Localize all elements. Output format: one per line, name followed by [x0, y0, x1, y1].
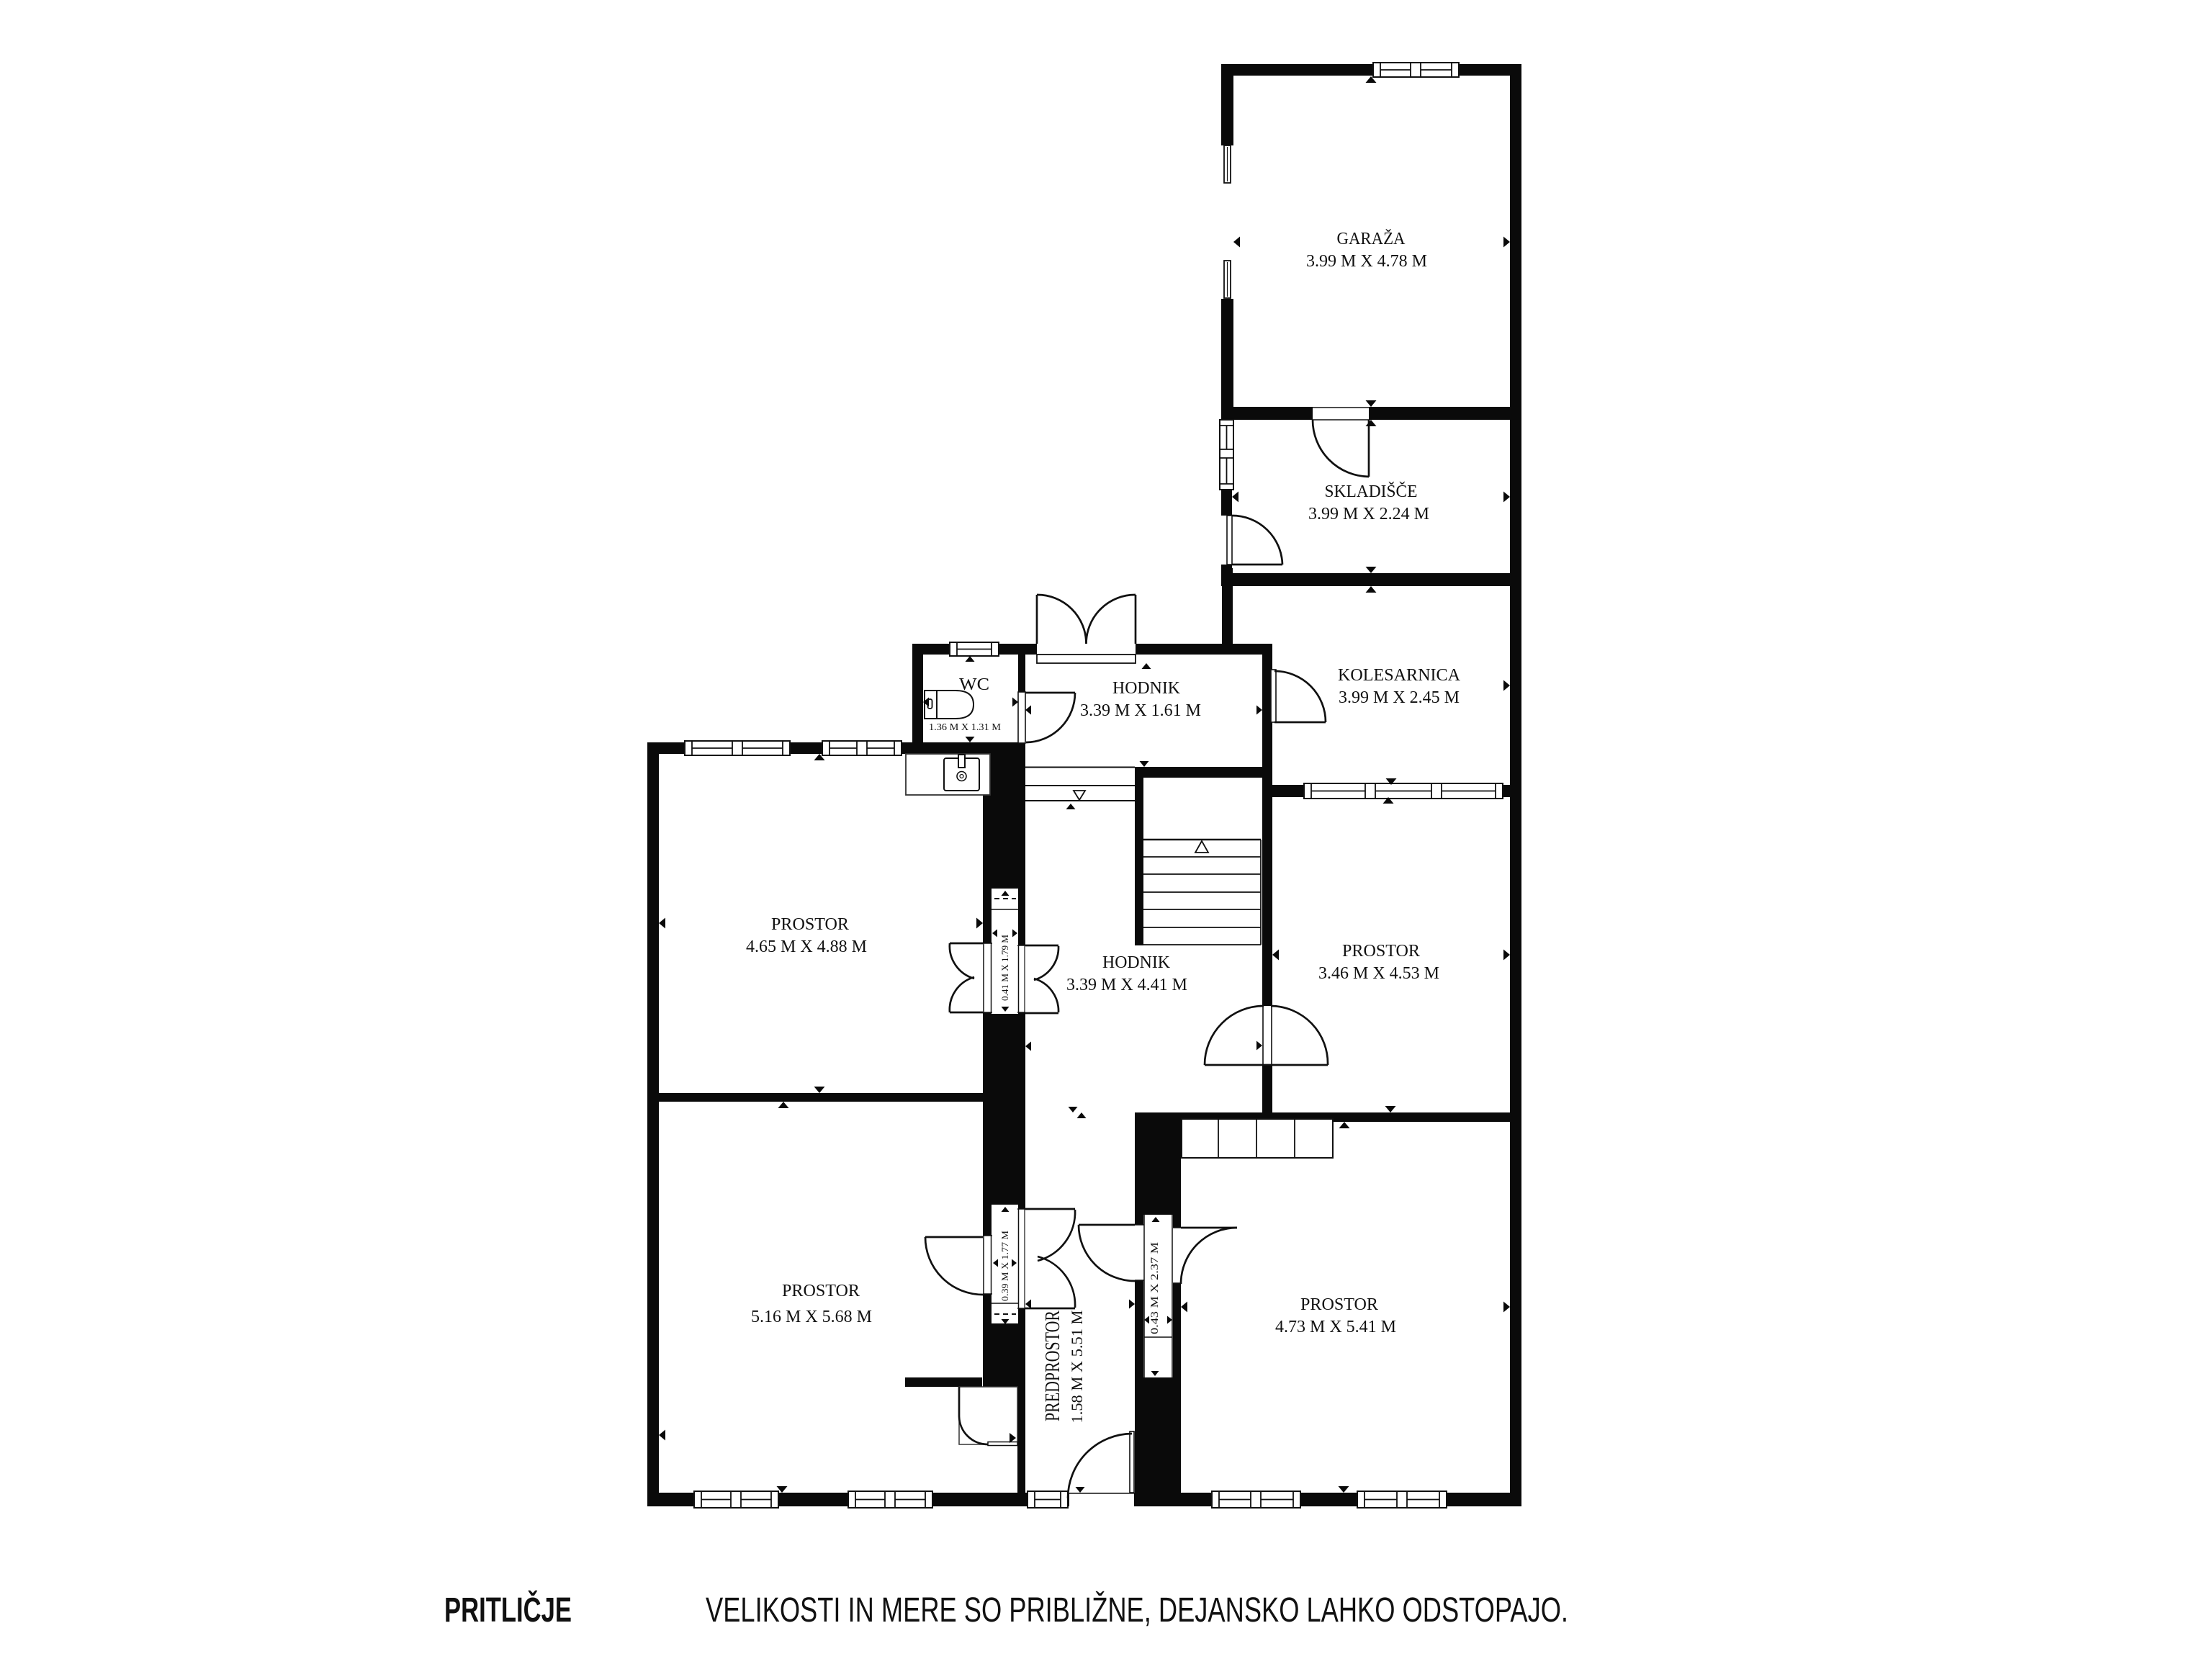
svg-text:0.41 M X 1.79 M: 0.41 M X 1.79 M	[999, 935, 1010, 1001]
svg-text:HODNIK: HODNIK	[1112, 679, 1181, 698]
svg-text:PROSTOR: PROSTOR	[1300, 1295, 1378, 1314]
svg-text:HODNIK: HODNIK	[1102, 953, 1171, 972]
svg-text:0.39 M X 1.77 M: 0.39 M X 1.77 M	[999, 1231, 1010, 1301]
svg-text:PRITLIČJE: PRITLIČJE	[444, 1590, 572, 1629]
svg-text:3.39 M X 4.41 M: 3.39 M X 4.41 M	[1066, 976, 1187, 994]
svg-text:3.99 M X 2.24 M: 3.99 M X 2.24 M	[1308, 505, 1429, 523]
svg-text:3.46 M X 4.53 M: 3.46 M X 4.53 M	[1318, 964, 1439, 983]
svg-text:3.39 M X 1.61 M: 3.39 M X 1.61 M	[1080, 701, 1201, 720]
svg-text:KOLESARNICA: KOLESARNICA	[1338, 666, 1461, 685]
svg-text:PREDPROSTOR: PREDPROSTOR	[1042, 1310, 1064, 1421]
svg-text:VELIKOSTI IN MERE SO PRIBLIŽNE: VELIKOSTI IN MERE SO PRIBLIŽNE, DEJANSKO…	[706, 1591, 1568, 1629]
svg-text:1.36 M X 1.31 M: 1.36 M X 1.31 M	[929, 722, 1002, 733]
svg-text:4.73 M X 5.41 M: 4.73 M X 5.41 M	[1275, 1318, 1396, 1336]
svg-text:3.99 M X 2.45 M: 3.99 M X 2.45 M	[1339, 688, 1460, 707]
svg-text:GARAŽA: GARAŽA	[1337, 230, 1406, 248]
svg-text:5.16 M X 5.68 M: 5.16 M X 5.68 M	[751, 1308, 872, 1326]
svg-text:3.99 M X 4.78 M: 3.99 M X 4.78 M	[1306, 252, 1427, 271]
svg-text:SKLADIŠČE: SKLADIŠČE	[1325, 482, 1418, 501]
svg-text:0.43 M X 2.37 M: 0.43 M X 2.37 M	[1149, 1242, 1161, 1334]
svg-text:PROSTOR: PROSTOR	[782, 1282, 860, 1300]
svg-text:PROSTOR: PROSTOR	[1342, 942, 1420, 961]
svg-text:1.58 M X 5.51 M: 1.58 M X 5.51 M	[1068, 1310, 1086, 1424]
svg-text:PROSTOR: PROSTOR	[771, 915, 849, 934]
svg-text:WC: WC	[959, 675, 989, 694]
svg-text:4.65 M X 4.88 M: 4.65 M X 4.88 M	[746, 938, 867, 956]
